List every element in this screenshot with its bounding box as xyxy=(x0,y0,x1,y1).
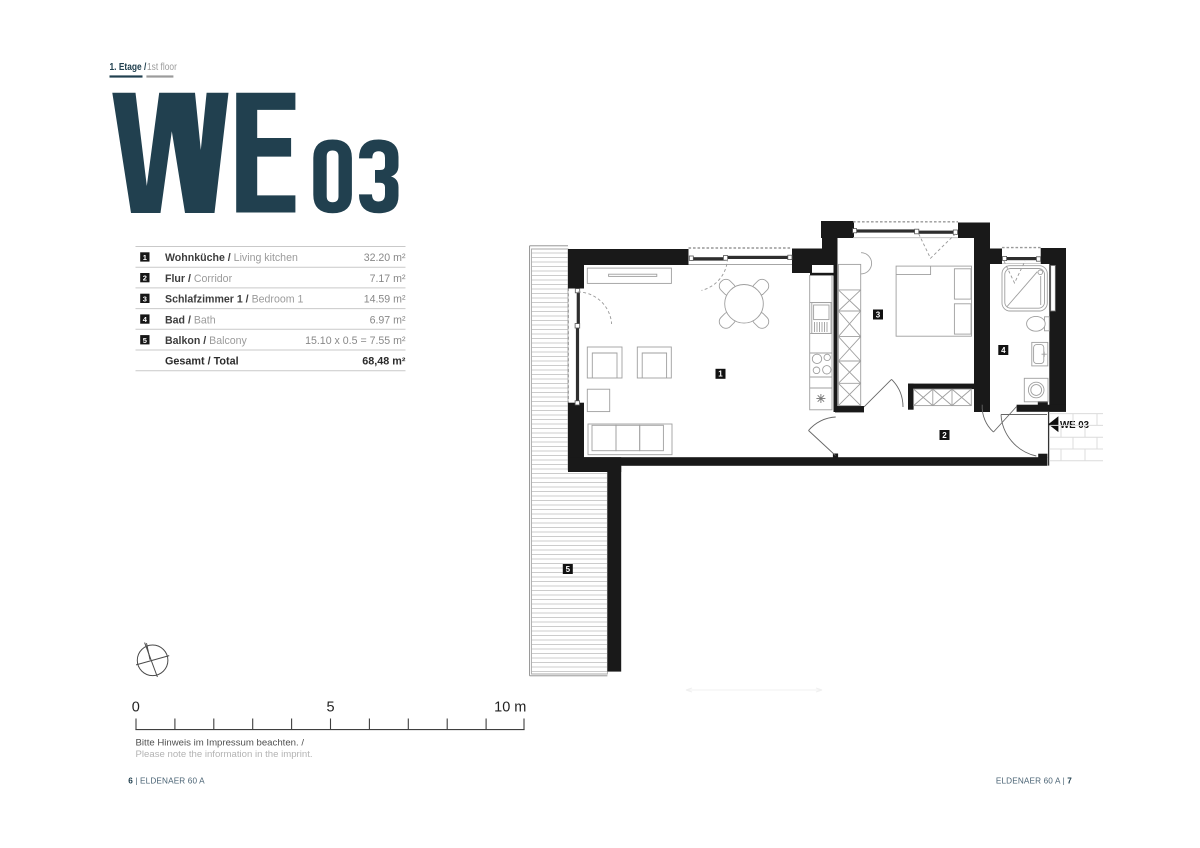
svg-text:Schlafzimmer 1 / Bedroom 1: Schlafzimmer 1 / Bedroom 1 xyxy=(165,294,303,306)
svg-text:ELDENAER 60 A | 7: ELDENAER 60 A | 7 xyxy=(996,776,1072,785)
svg-text:Balkon / Balcony: Balkon / Balcony xyxy=(165,335,248,347)
svg-text:Gesamt / Total: Gesamt / Total xyxy=(165,356,239,368)
svg-text:2: 2 xyxy=(143,274,147,283)
svg-text:3: 3 xyxy=(143,294,147,303)
svg-text:1. Etage /: 1. Etage / xyxy=(110,61,147,73)
svg-text:2: 2 xyxy=(942,431,947,440)
svg-text:1st floor: 1st floor xyxy=(147,61,177,73)
svg-text:5: 5 xyxy=(326,700,334,716)
svg-text:Please note the information in: Please note the information in the impri… xyxy=(136,749,313,760)
svg-text:Bad / Bath: Bad / Bath xyxy=(165,314,216,326)
svg-text:15.10 x 0.5 = 7.55 m²: 15.10 x 0.5 = 7.55 m² xyxy=(305,335,406,347)
svg-text:1: 1 xyxy=(718,370,723,379)
svg-text:10 m: 10 m xyxy=(494,700,526,716)
svg-text:1: 1 xyxy=(143,253,147,262)
svg-text:3: 3 xyxy=(876,310,881,319)
svg-text:68,48 m²: 68,48 m² xyxy=(362,356,406,368)
svg-text:7.17 m²: 7.17 m² xyxy=(370,273,406,285)
svg-text:5: 5 xyxy=(566,565,571,574)
svg-text:14.59 m²: 14.59 m² xyxy=(364,294,406,306)
svg-text:Bitte Hinweis im Impressum bea: Bitte Hinweis im Impressum beachten. / xyxy=(136,738,305,749)
svg-text:0: 0 xyxy=(132,700,140,716)
svg-text:Wohnküche / Living kitchen: Wohnküche / Living kitchen xyxy=(165,252,298,264)
svg-text:6.97 m²: 6.97 m² xyxy=(370,314,406,326)
svg-text:Flur / Corridor: Flur / Corridor xyxy=(165,273,233,285)
svg-text:32.20 m²: 32.20 m² xyxy=(364,252,406,264)
svg-text:5: 5 xyxy=(143,336,147,345)
svg-text:6 | ELDENAER 60 A: 6 | ELDENAER 60 A xyxy=(128,776,205,785)
svg-text:4: 4 xyxy=(1001,346,1006,355)
